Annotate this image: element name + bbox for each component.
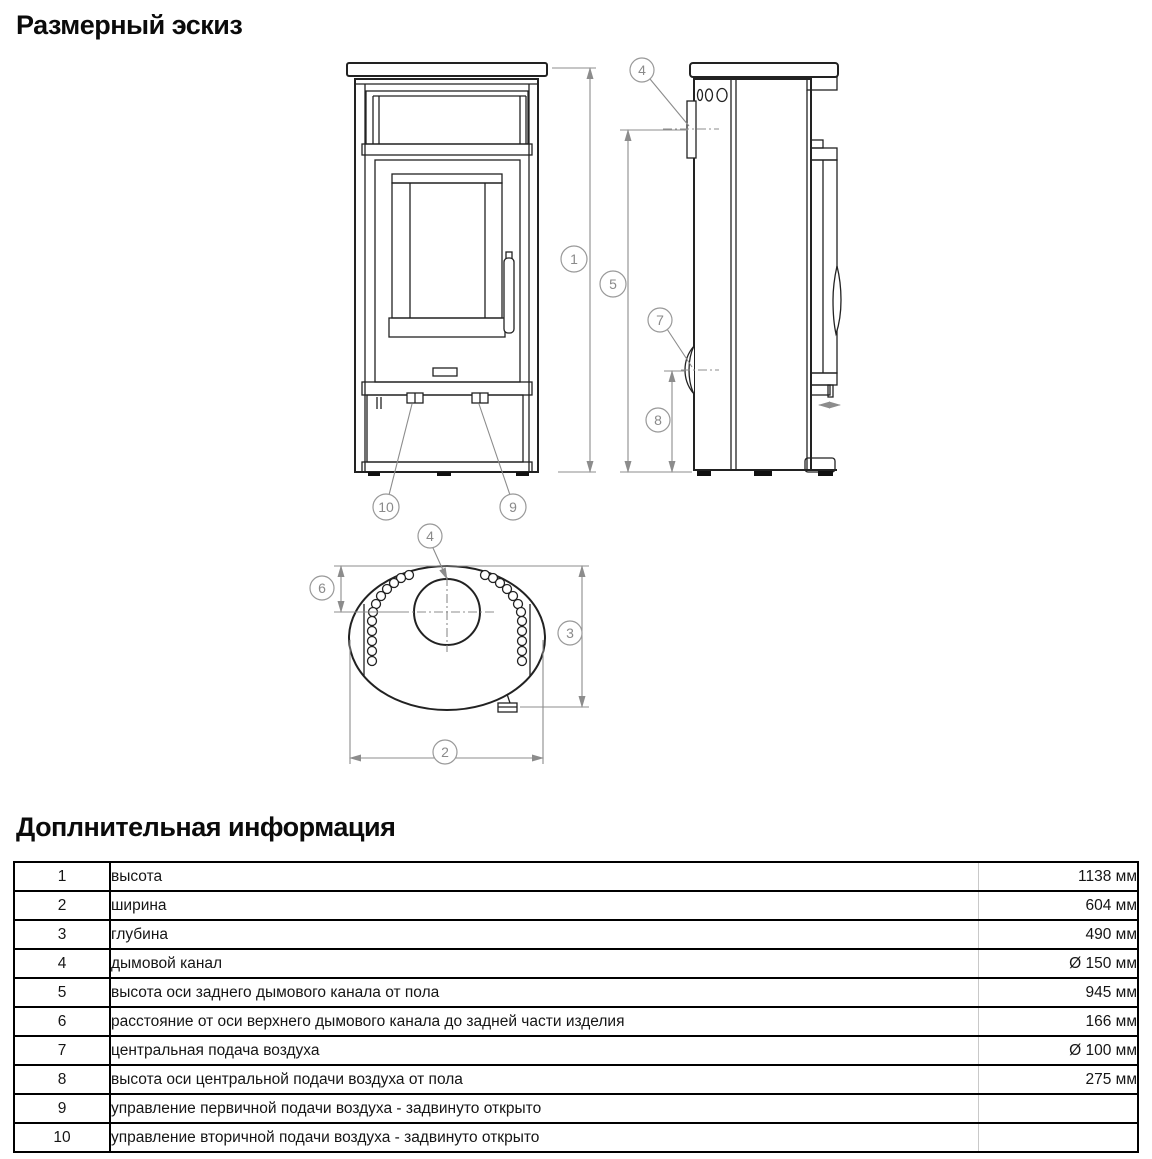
svg-text:4: 4	[426, 528, 434, 544]
row-number: 10	[14, 1123, 110, 1152]
row-number: 4	[14, 949, 110, 978]
front-view	[347, 63, 547, 476]
table-row: 3 глубина 490 мм	[14, 920, 1138, 949]
row-value: 490 мм	[979, 920, 1139, 949]
side-door-profile	[811, 140, 841, 405]
front-door-handle	[504, 258, 514, 333]
row-name: управление вторичной подачи воздуха - за…	[110, 1123, 979, 1152]
dimensional-sketch: 1 5 4 7 8 10 9	[0, 0, 1152, 800]
front-top-plate	[347, 63, 547, 76]
front-upper-compartment	[366, 91, 528, 144]
row-value: 275 мм	[979, 1065, 1139, 1094]
page: Размерный эскиз	[0, 0, 1152, 1159]
row-name: управление первичной подачи воздуха - за…	[110, 1094, 979, 1123]
table-row: 5 высота оси заднего дымового канала от …	[14, 978, 1138, 1007]
svg-text:4: 4	[638, 62, 646, 78]
info-table: 1 высота 1138 мм 2 ширина 604 мм 3 глуби…	[13, 861, 1139, 1153]
side-top-vents	[698, 89, 728, 102]
callout-8: 8	[646, 408, 670, 432]
row-name: глубина	[110, 920, 979, 949]
row-value: 604 мм	[979, 891, 1139, 920]
callout-4-side: 4	[630, 58, 654, 82]
callout-6: 6	[310, 576, 334, 600]
svg-text:1: 1	[570, 251, 578, 267]
row-name: расстояние от оси верхнего дымового кана…	[110, 1007, 979, 1036]
front-door-slot	[433, 368, 457, 376]
row-number: 9	[14, 1094, 110, 1123]
callout-7: 7	[648, 308, 672, 332]
row-value: Ø 100 мм	[979, 1036, 1139, 1065]
front-lower-compartment	[367, 393, 523, 462]
side-view	[663, 63, 841, 476]
callout-5: 5	[600, 271, 626, 297]
svg-text:2: 2	[441, 744, 449, 760]
row-number: 6	[14, 1007, 110, 1036]
row-number: 7	[14, 1036, 110, 1065]
svg-text:9: 9	[509, 499, 517, 515]
svg-text:8: 8	[654, 412, 662, 428]
row-value: 1138 мм	[979, 862, 1139, 891]
row-value: 166 мм	[979, 1007, 1139, 1036]
row-number: 1	[14, 862, 110, 891]
top-door-handle	[498, 694, 517, 712]
top-body-outline	[349, 566, 545, 710]
row-name: высота оси заднего дымового канала от по…	[110, 978, 979, 1007]
row-number: 2	[14, 891, 110, 920]
table-row: 6 расстояние от оси верхнего дымового ка…	[14, 1007, 1138, 1036]
info-title: Доплнительная информация	[16, 812, 395, 843]
row-value	[979, 1123, 1139, 1152]
callout-9: 9	[500, 494, 526, 520]
table-row: 9 управление первичной подачи воздуха - …	[14, 1094, 1138, 1123]
svg-text:10: 10	[378, 499, 394, 515]
svg-text:7: 7	[656, 312, 664, 328]
row-name: дымовой канал	[110, 949, 979, 978]
table-row: 2 ширина 604 мм	[14, 891, 1138, 920]
row-name: высота	[110, 862, 979, 891]
svg-text:5: 5	[609, 276, 617, 292]
side-body	[694, 79, 811, 470]
front-divider-band	[362, 144, 532, 155]
table-row: 1 высота 1138 мм	[14, 862, 1138, 891]
row-name: ширина	[110, 891, 979, 920]
row-number: 8	[14, 1065, 110, 1094]
front-base	[362, 462, 532, 472]
row-value: Ø 150 мм	[979, 949, 1139, 978]
callout-4-top: 4	[418, 524, 442, 548]
top-view	[349, 566, 545, 712]
callout-10: 10	[373, 494, 399, 520]
table-row: 8 высота оси центральной подачи воздуха …	[14, 1065, 1138, 1094]
row-value	[979, 1094, 1139, 1123]
side-door-handle	[833, 266, 841, 334]
svg-text:6: 6	[318, 580, 326, 596]
table-row: 10 управление вторичной подачи воздуха -…	[14, 1123, 1138, 1152]
row-value: 945 мм	[979, 978, 1139, 1007]
callout-1: 1	[561, 246, 587, 272]
row-number: 3	[14, 920, 110, 949]
front-door	[375, 160, 520, 382]
row-name: центральная подача воздуха	[110, 1036, 979, 1065]
callout-2: 2	[433, 740, 457, 764]
callout-3: 3	[558, 621, 582, 645]
side-top-plate	[690, 63, 838, 77]
row-number: 5	[14, 978, 110, 1007]
table-row: 7 центральная подача воздуха Ø 100 мм	[14, 1036, 1138, 1065]
svg-text:3: 3	[566, 625, 574, 641]
row-name: высота оси центральной подачи воздуха от…	[110, 1065, 979, 1094]
table-row: 4 дымовой канал Ø 150 мм	[14, 949, 1138, 978]
dimension-lines	[334, 68, 692, 764]
